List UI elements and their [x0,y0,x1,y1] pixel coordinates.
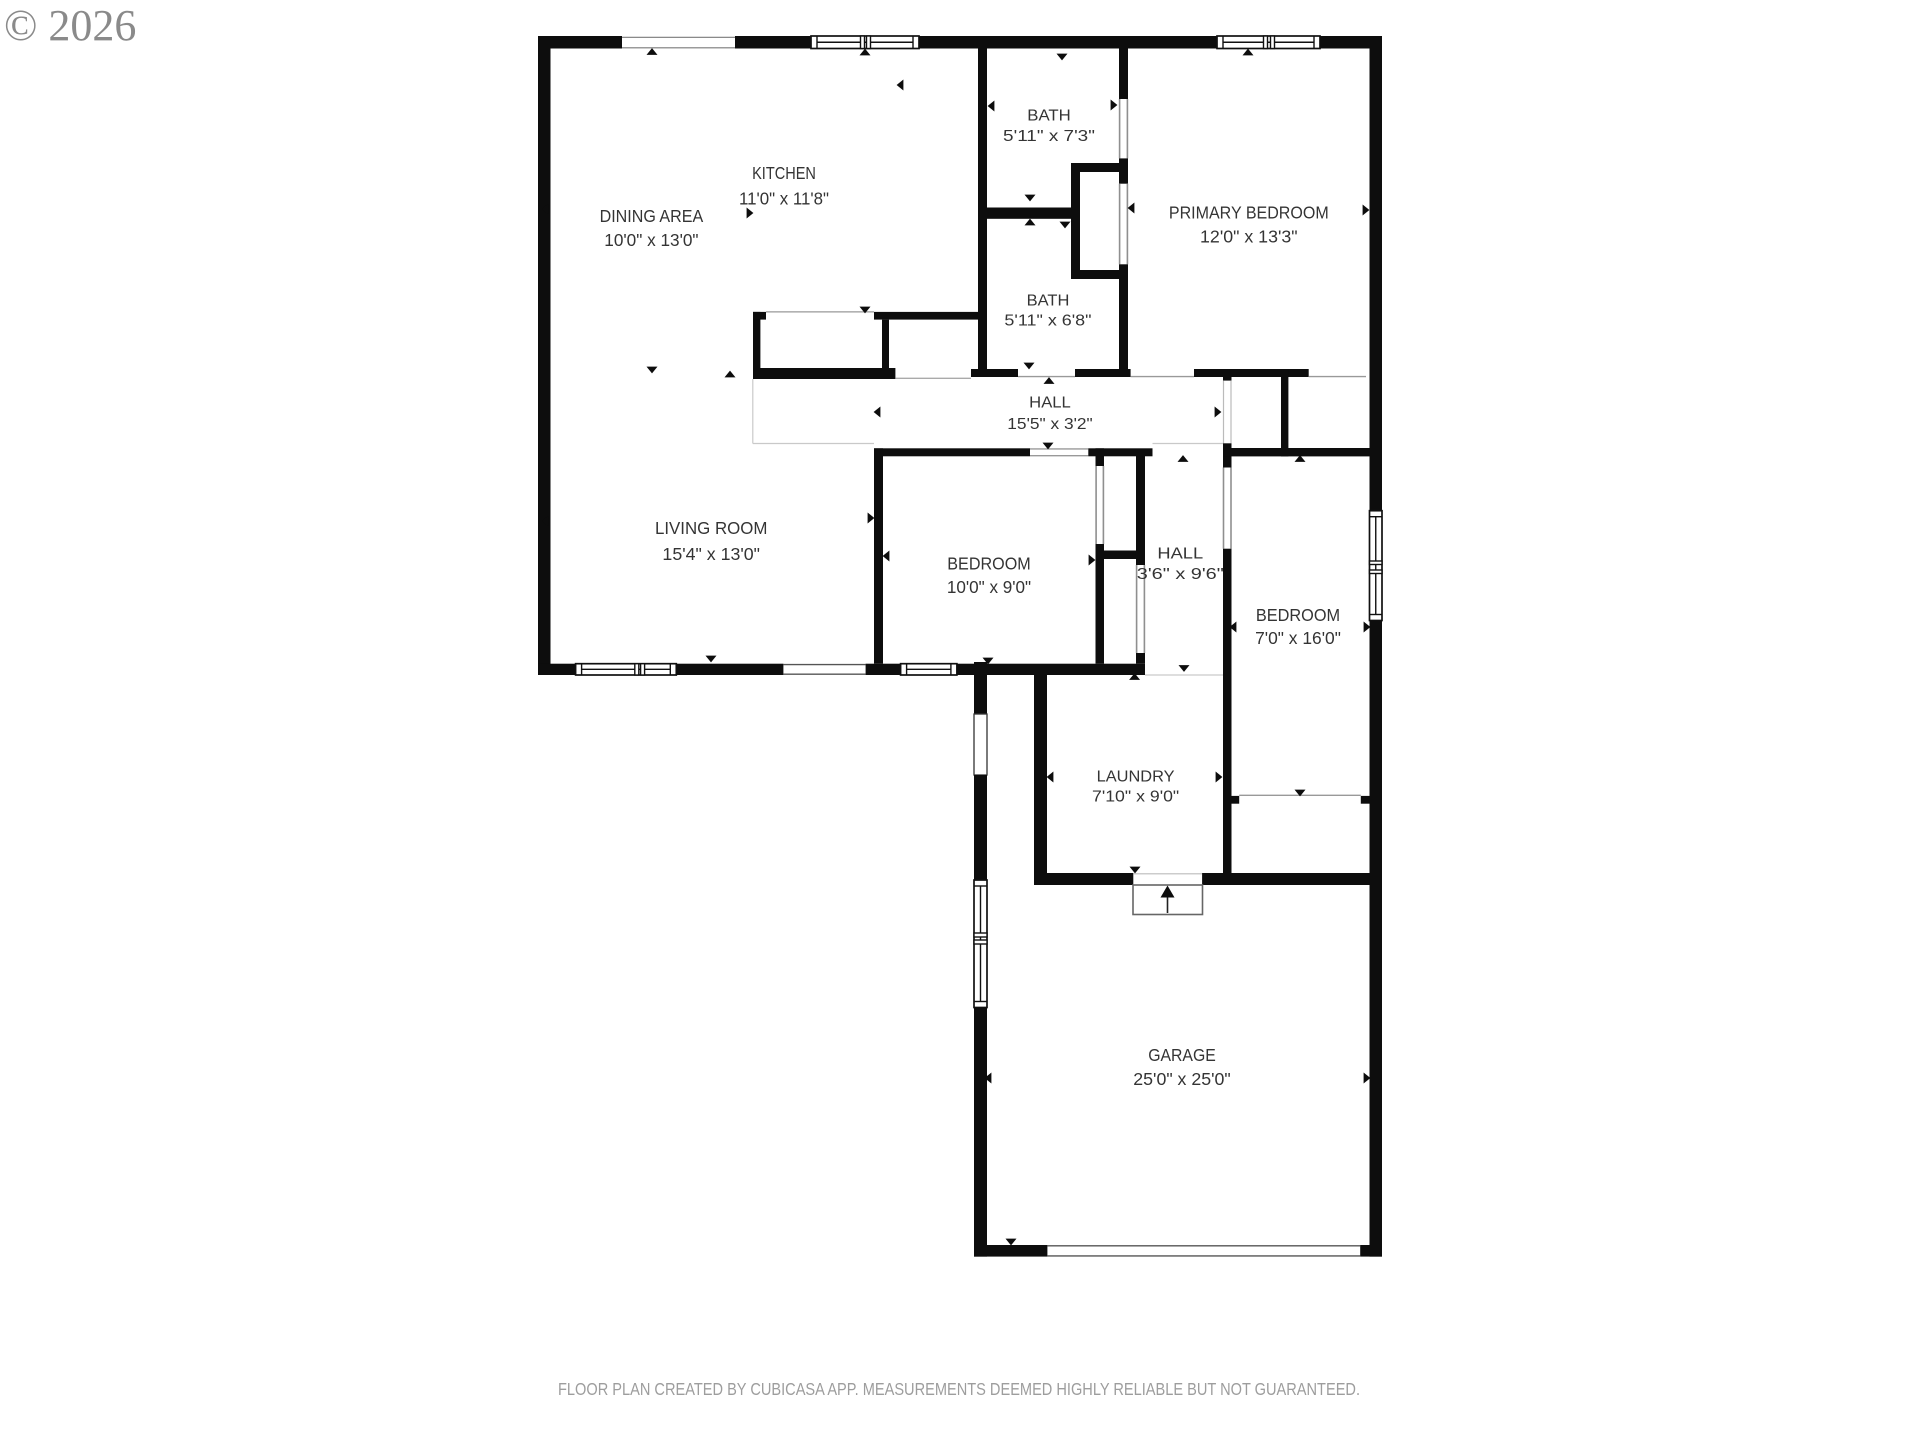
svg-text:3'6" x 9'6": 3'6" x 9'6" [1137,566,1224,583]
svg-text:DINING AREA: DINING AREA [600,206,704,226]
svg-text:HALL: HALL [1157,546,1203,563]
svg-text:BATH: BATH [1027,293,1070,310]
svg-text:PRIMARY BEDROOM: PRIMARY BEDROOM [1169,203,1329,223]
svg-text:5'11" x 7'3": 5'11" x 7'3" [1003,128,1095,145]
svg-text:12'0" x 13'3": 12'0" x 13'3" [1200,227,1298,247]
svg-text:5'11" x 6'8": 5'11" x 6'8" [1004,313,1091,330]
svg-text:BEDROOM: BEDROOM [1256,605,1340,625]
svg-text:10'0" x 13'0": 10'0" x 13'0" [604,230,698,250]
svg-text:BATH: BATH [1027,108,1071,125]
svg-text:15'4" x 13'0": 15'4" x 13'0" [662,544,760,564]
svg-text:15'5" x 3'2": 15'5" x 3'2" [1007,416,1092,433]
svg-text:HALL: HALL [1029,395,1071,412]
svg-text:11'0" x 11'8": 11'0" x 11'8" [739,189,829,209]
svg-text:7'10" x 9'0": 7'10" x 9'0" [1092,789,1179,806]
svg-text:LIVING ROOM: LIVING ROOM [655,518,768,538]
svg-text:10'0" x 9'0": 10'0" x 9'0" [947,577,1031,597]
svg-text:KITCHEN: KITCHEN [752,163,816,183]
svg-text:© 2026: © 2026 [4,1,136,50]
svg-text:FLOOR PLAN CREATED BY CUBICASA: FLOOR PLAN CREATED BY CUBICASA APP. MEAS… [558,1379,1360,1399]
svg-text:BEDROOM: BEDROOM [947,554,1030,574]
svg-text:GARAGE: GARAGE [1148,1045,1216,1065]
svg-text:7'0" x 16'0": 7'0" x 16'0" [1255,628,1341,648]
svg-text:LAUNDRY: LAUNDRY [1097,769,1176,786]
svg-text:25'0" x 25'0": 25'0" x 25'0" [1133,1069,1230,1089]
